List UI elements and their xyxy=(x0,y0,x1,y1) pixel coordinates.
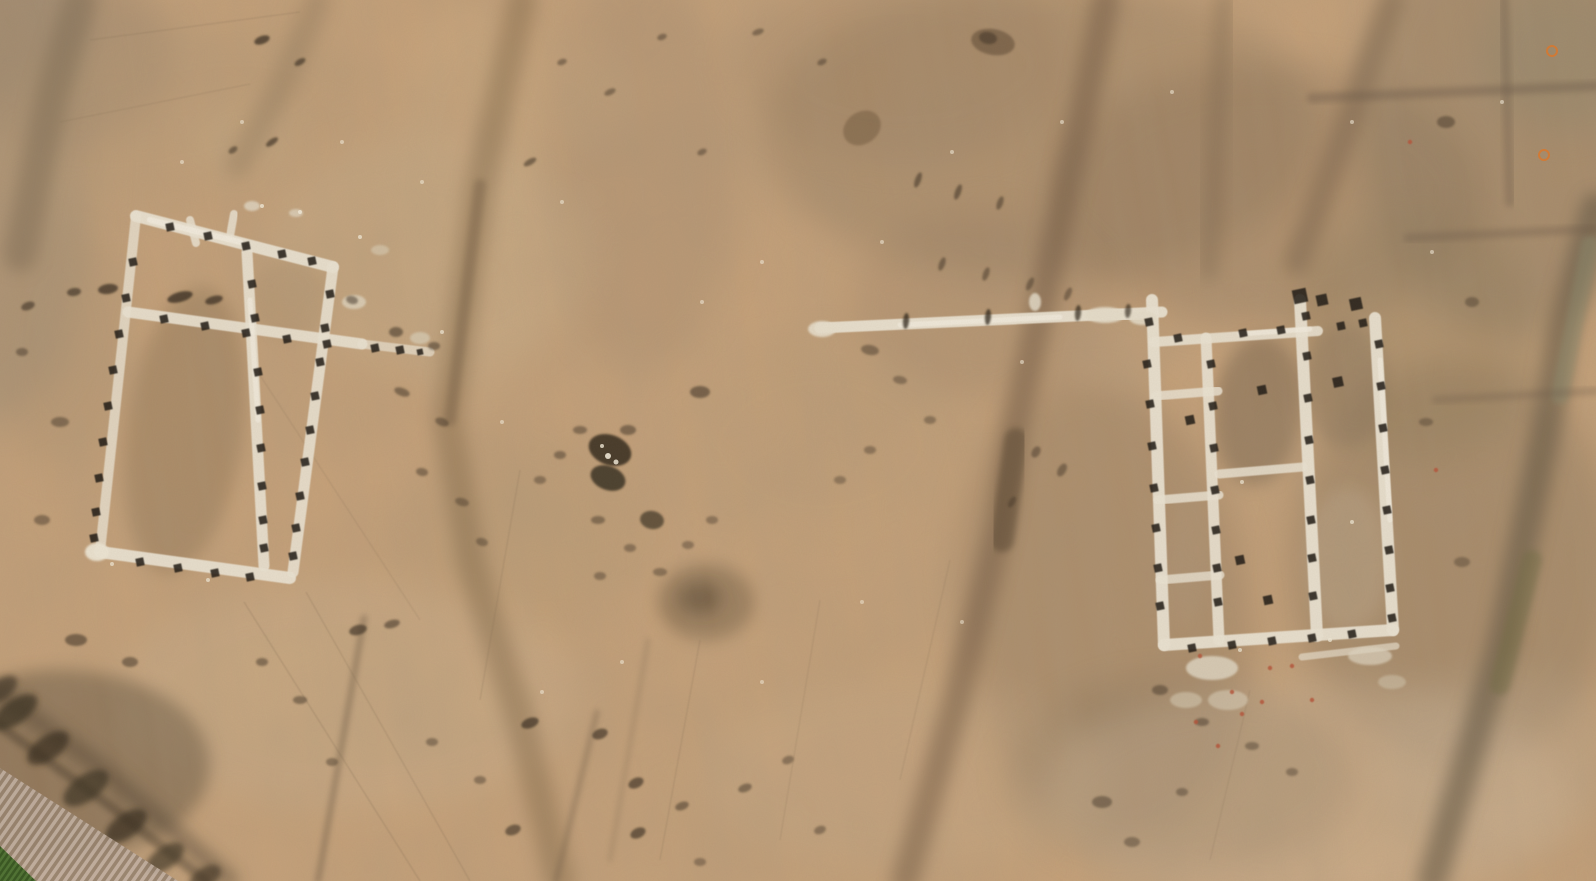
texture-grain xyxy=(0,0,1596,881)
sparkle-noise-overlay xyxy=(0,0,1596,881)
screenshot-root xyxy=(0,0,1596,881)
excavation-aerial-photo xyxy=(0,0,1596,881)
